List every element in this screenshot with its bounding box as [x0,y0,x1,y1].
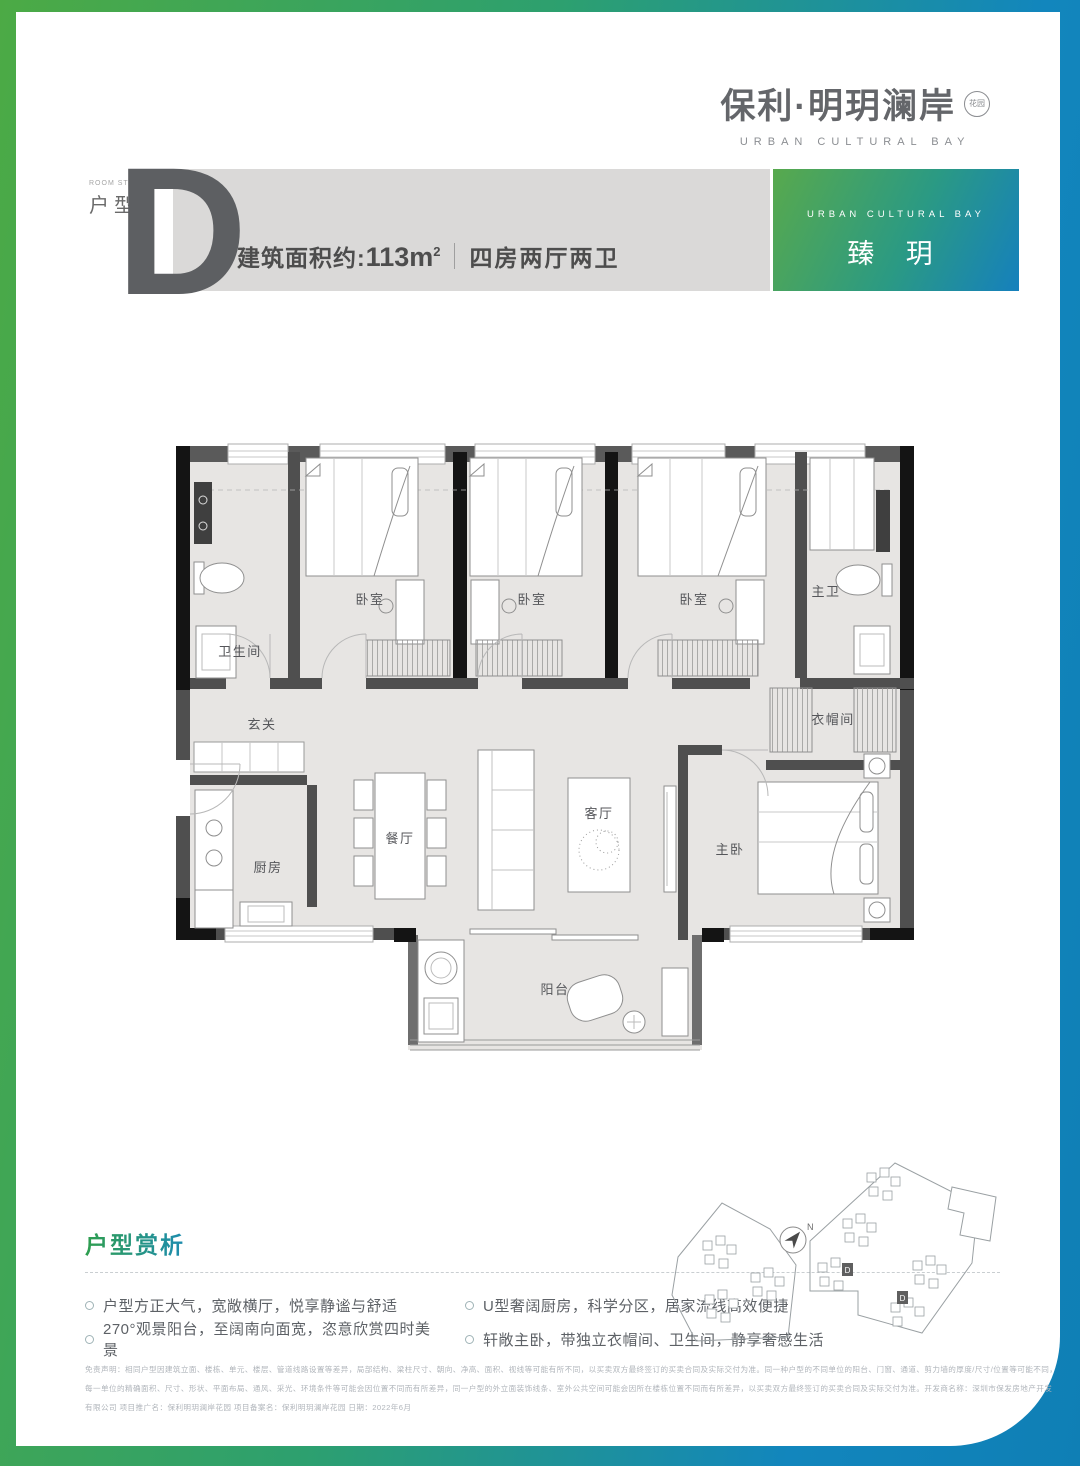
disclaimer: 免责声明：相同户型因建筑立面、楼栋、单元、楼层、管道线路设置等差异，局部结构、梁… [85,1360,1021,1417]
site-plan: D D N [660,1145,1040,1370]
site-building-outline [948,1187,996,1241]
series-badge: URBAN CULTURAL BAY 臻 玥 [773,169,1019,291]
area-label: 建筑面积约: [237,239,366,273]
label-cloakroom: 衣帽间 [811,712,855,727]
label-bath: 卫生间 [218,644,262,659]
label-dining: 餐厅 [385,831,414,846]
disclaimer-line: 免责声明：相同户型因建筑立面、楼栋、单元、楼层、管道线路设置等差异，局部结构、梁… [85,1360,1021,1379]
brand-name-cn: 保利·明玥澜岸 [720,78,956,129]
series-badge-en: URBAN CULTURAL BAY [773,209,1019,220]
site-unit-d1: D [845,1266,851,1275]
site-highlight-unit-1: D [842,1263,853,1276]
label-living: 客厅 [584,806,613,821]
compass-north-label: N [807,1222,814,1232]
area-banner: 建筑面积约: 113m 2 四房两厅两卫 [173,169,770,291]
bullet-ring-icon [465,1335,474,1344]
brand-logo: 保利·明玥澜岸 花园 URBAN CULTURAL BAY [720,78,990,148]
label-bedroom3: 卧室 [679,592,708,607]
label-master-bedroom: 主卧 [715,842,744,857]
site-unit-d2: D [900,1294,906,1303]
layout-spec: 四房两厅两卫 [469,239,619,273]
label-balcony: 阳台 [540,982,569,997]
compass-icon: N [780,1222,814,1253]
type-letter: D [116,140,247,322]
label-master-bath: 主卫 [811,584,840,599]
label-foyer: 玄关 [247,717,276,732]
analysis-bullet-text: 户型方正大气，宽敞横厅，悦享静谧与舒适 [103,1295,398,1316]
label-bedroom2: 卧室 [517,592,546,607]
brand-name-en: URBAN CULTURAL BAY [720,136,990,148]
label-kitchen: 厨房 [253,860,282,875]
analysis-title: 户型赏析 [85,1226,185,1260]
site-highlight-unit-2: D [897,1291,908,1304]
analysis-bullet: 270°观景阳台，至阔南向面宽，恣意欣赏四时美景 [85,1322,437,1356]
bullet-ring-icon [85,1335,94,1344]
label-bedroom1: 卧室 [355,592,384,607]
floor-plan: 卫生间 卧室 卧室 卧室 主卫 玄关 衣帽间 厨房 餐厅 客厅 主卧 阳台 [170,430,930,1060]
analysis-bullet: 户型方正大气，宽敞横厅，悦享静谧与舒适 [85,1288,437,1322]
foyer-cabinet [194,742,304,772]
disclaimer-line: 有限公司 项目推广名：保利明玥澜岸花园 项目备案名：保利明玥澜岸花园 日期：20… [85,1398,1021,1417]
bullet-ring-icon [85,1301,94,1310]
content-sheet: 保利·明玥澜岸 花园 URBAN CULTURAL BAY ROOM STYLE… [16,12,1060,1446]
analysis-bullet-text: 270°观景阳台，至阔南向面宽，恣意欣赏四时美景 [103,1318,437,1360]
disclaimer-line: 每一单位的精确面积、尺寸、形状、平面布局、通风、采光、环境条件等可能会因位置不同… [85,1379,1021,1398]
area-value: 113m [366,242,434,273]
series-badge-cn: 臻 玥 [773,232,1019,271]
bullet-ring-icon [465,1301,474,1310]
area-superscript: 2 [433,244,440,259]
brochure-page: 保利·明玥澜岸 花园 URBAN CULTURAL BAY ROOM STYLE… [0,0,1080,1466]
site-plot-left [672,1203,796,1341]
site-tower-clusters [703,1168,946,1326]
area-divider [454,243,455,269]
brand-seal-icon: 花园 [964,91,990,117]
